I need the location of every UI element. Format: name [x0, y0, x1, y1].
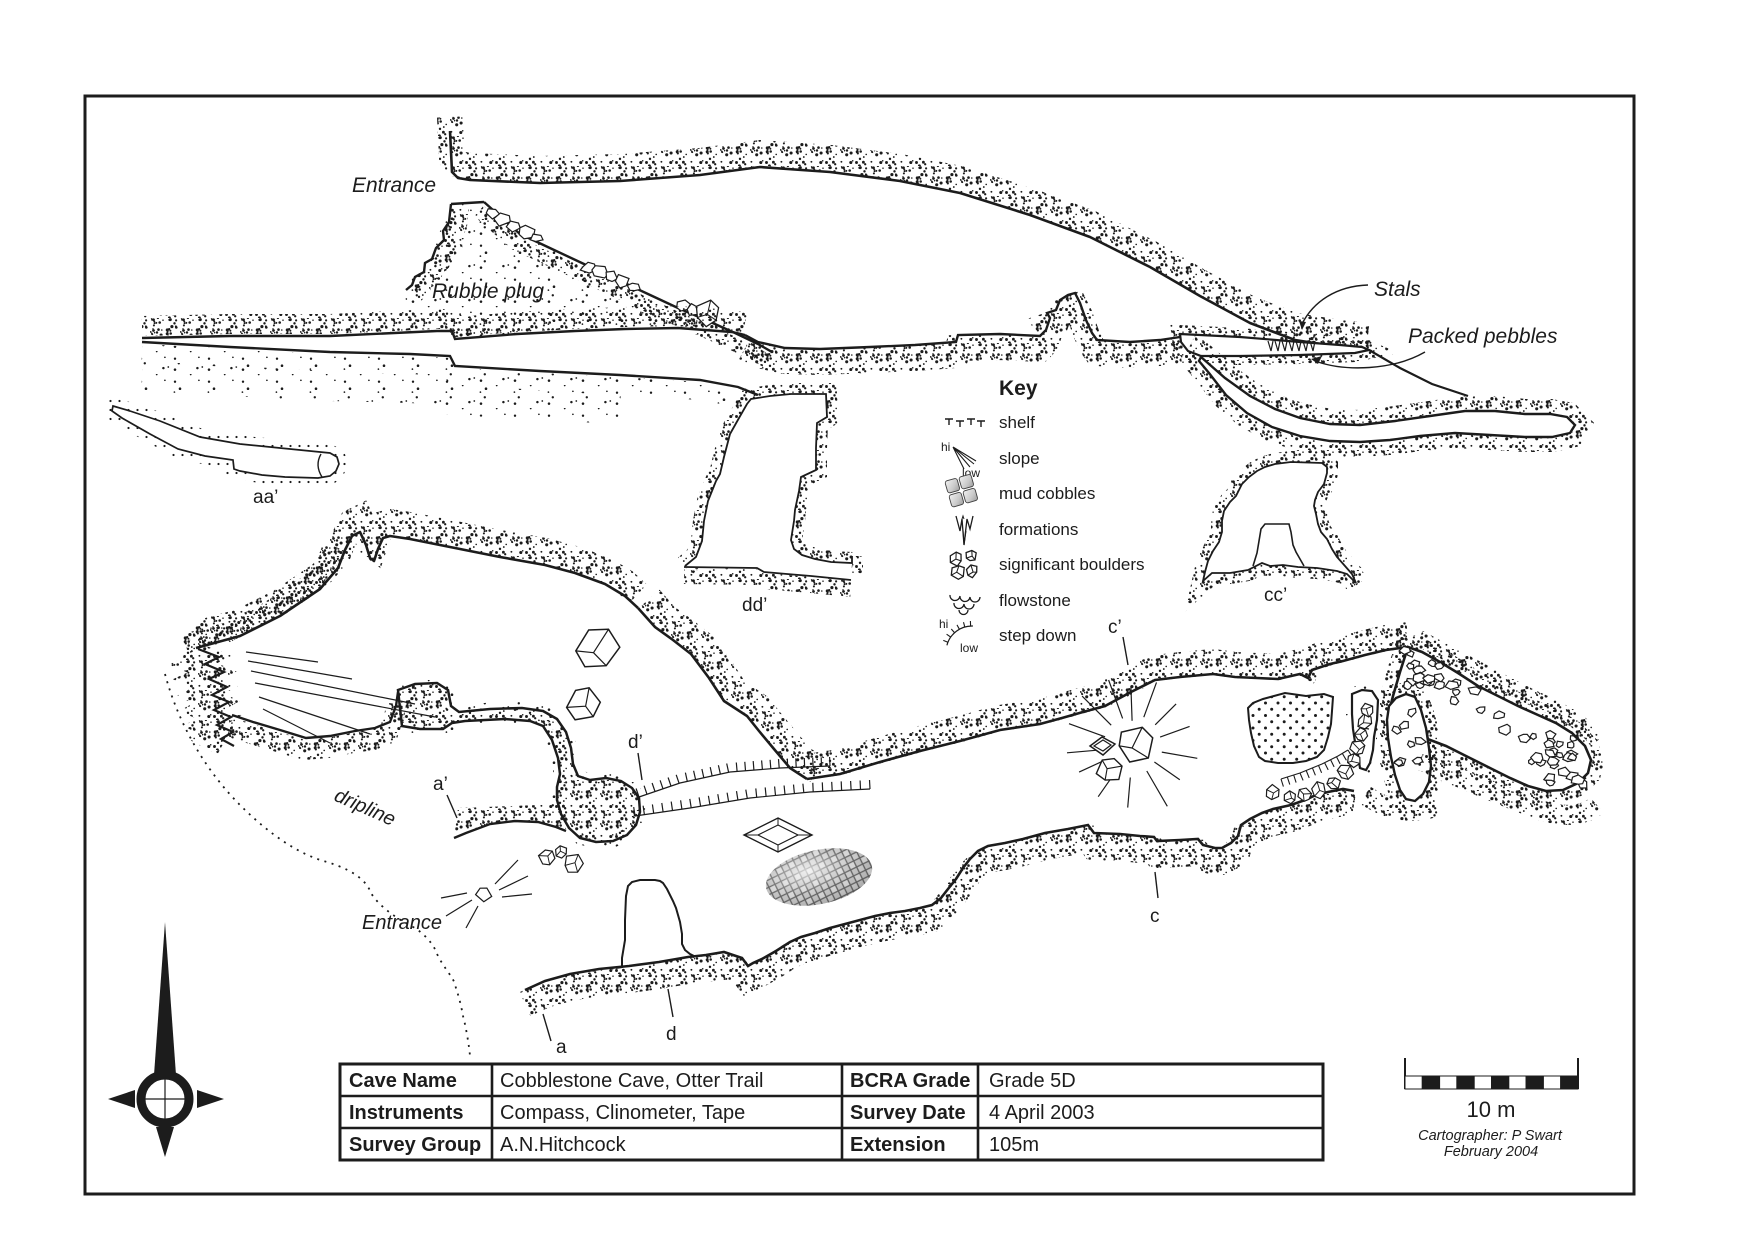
svg-text:step down: step down	[999, 626, 1077, 645]
svg-text:a’: a’	[433, 774, 448, 795]
svg-text:Instruments: Instruments	[349, 1102, 463, 1124]
svg-text:4 April 2003: 4 April 2003	[989, 1102, 1095, 1124]
svg-text:a: a	[556, 1037, 567, 1058]
svg-text:low: low	[960, 641, 978, 655]
svg-text:Extension: Extension	[850, 1134, 946, 1156]
svg-text:significant boulders: significant boulders	[999, 555, 1145, 574]
svg-text:Packed pebbles: Packed pebbles	[1408, 325, 1558, 348]
svg-text:cc’: cc’	[1264, 585, 1287, 606]
svg-text:February 2004: February 2004	[1444, 1144, 1538, 1160]
svg-text:Grade 5D: Grade 5D	[989, 1070, 1076, 1092]
svg-text:Survey Date: Survey Date	[850, 1102, 966, 1124]
svg-text:dd’: dd’	[742, 595, 767, 616]
svg-text:A.N.Hitchcock: A.N.Hitchcock	[500, 1134, 627, 1156]
svg-text:10 m: 10 m	[1467, 1097, 1516, 1122]
svg-text:aa’: aa’	[253, 487, 278, 508]
svg-text:Cobblestone Cave, Otter Trail: Cobblestone Cave, Otter Trail	[500, 1070, 763, 1092]
svg-text:d: d	[666, 1024, 677, 1045]
svg-text:105m: 105m	[989, 1134, 1039, 1156]
svg-text:c’: c’	[1108, 617, 1122, 638]
svg-text:formations: formations	[999, 520, 1078, 539]
svg-text:Cartographer: P Swart: Cartographer: P Swart	[1418, 1128, 1563, 1144]
svg-text:Key: Key	[999, 377, 1038, 400]
svg-text:Compass, Clinometer, Tape: Compass, Clinometer, Tape	[500, 1102, 745, 1124]
svg-text:flowstone: flowstone	[999, 591, 1071, 610]
svg-text:Entrance: Entrance	[362, 912, 442, 934]
svg-text:d’: d’	[628, 732, 643, 753]
svg-text:hi: hi	[939, 617, 948, 631]
svg-text:Rubble plug: Rubble plug	[432, 280, 544, 303]
svg-text:c: c	[1150, 906, 1160, 927]
svg-text:slope: slope	[999, 449, 1040, 468]
svg-text:Cave Name: Cave Name	[349, 1070, 457, 1092]
svg-text:mud cobbles: mud cobbles	[999, 484, 1095, 503]
svg-text:BCRA Grade: BCRA Grade	[850, 1070, 970, 1092]
svg-text:Entrance: Entrance	[352, 174, 436, 197]
svg-text:Stals: Stals	[1374, 278, 1421, 301]
svg-text:Survey Group: Survey Group	[349, 1134, 481, 1156]
svg-text:hi: hi	[941, 440, 950, 454]
svg-text:shelf: shelf	[999, 413, 1035, 432]
